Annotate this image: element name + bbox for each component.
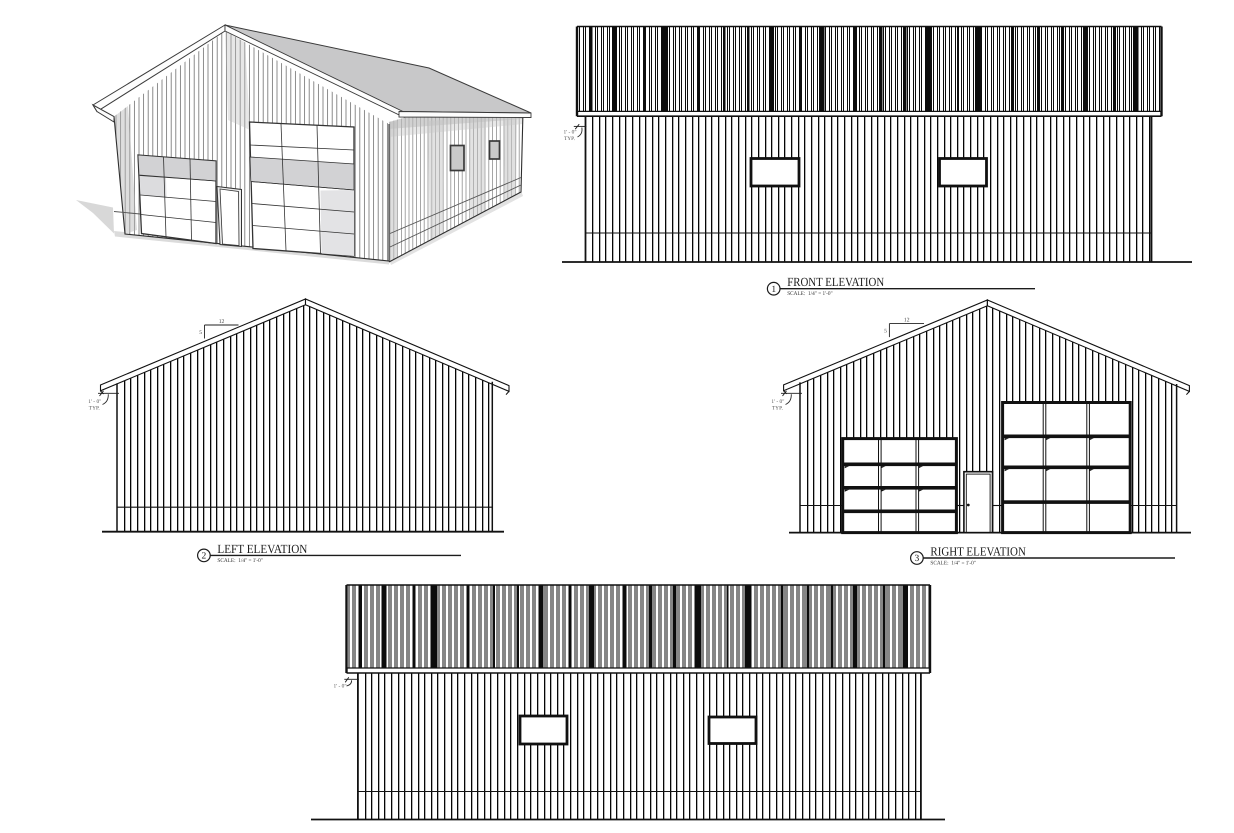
svg-text:TYP.: TYP. bbox=[89, 405, 100, 411]
svg-text:SCALE: 1/4" = 1'-0": SCALE: 1/4" = 1'-0" bbox=[787, 291, 833, 297]
svg-text:SCALE: 1/4" = 1'-0": SCALE: 1/4" = 1'-0" bbox=[217, 558, 263, 564]
svg-text:3: 3 bbox=[915, 554, 920, 564]
svg-text:1: 1 bbox=[771, 285, 776, 295]
svg-text:1' - 0": 1' - 0" bbox=[771, 399, 784, 405]
svg-text:RIGHT ELEVATION: RIGHT ELEVATION bbox=[930, 545, 1026, 559]
svg-text:2: 2 bbox=[202, 552, 207, 562]
svg-text:TYP.: TYP. bbox=[772, 405, 783, 411]
svg-text:12: 12 bbox=[904, 317, 910, 323]
svg-text:SCALE: 1/4" = 1'-0": SCALE: 1/4" = 1'-0" bbox=[930, 561, 976, 567]
svg-text:LEFT ELEVATION: LEFT ELEVATION bbox=[217, 542, 307, 556]
svg-text:12: 12 bbox=[219, 319, 225, 325]
svg-text:TYP.: TYP. bbox=[564, 136, 575, 142]
svg-text:FRONT ELEVATION: FRONT ELEVATION bbox=[787, 275, 884, 289]
svg-text:1' - 0": 1' - 0" bbox=[88, 399, 101, 405]
svg-text:1' - 0": 1' - 0" bbox=[564, 130, 577, 136]
svg-text:5: 5 bbox=[884, 329, 887, 335]
svg-text:1' - 0": 1' - 0" bbox=[334, 683, 347, 689]
svg-text:5: 5 bbox=[199, 330, 202, 336]
